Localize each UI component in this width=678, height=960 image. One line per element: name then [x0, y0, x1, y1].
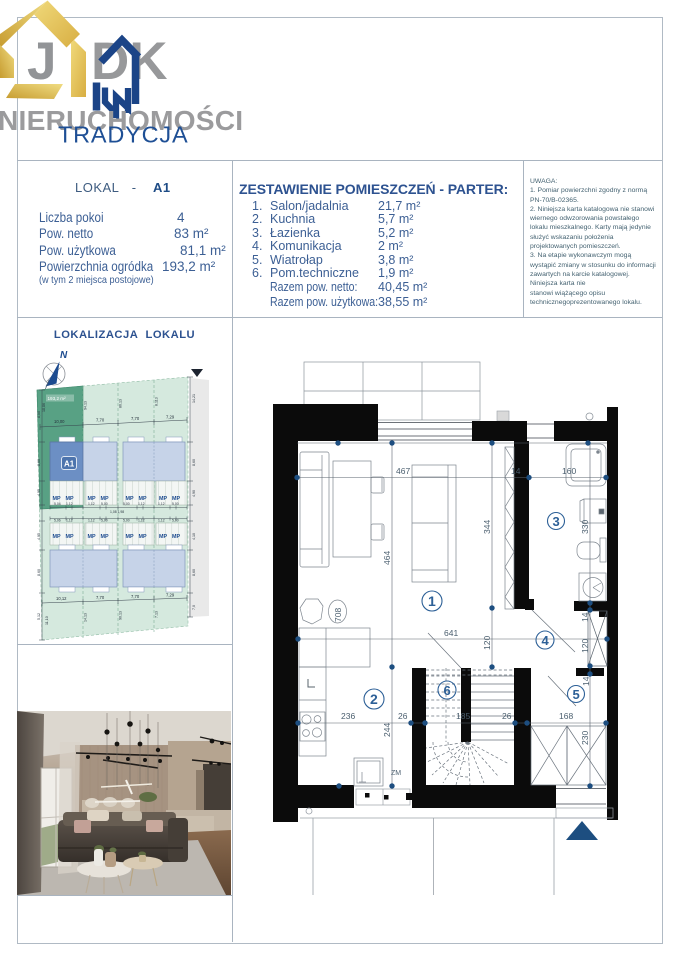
svg-text:11,10: 11,10: [45, 616, 49, 625]
svg-text:8,60: 8,60: [192, 459, 196, 466]
svg-text:7,13: 7,13: [155, 611, 159, 618]
svg-text:4,90: 4,90: [192, 490, 196, 497]
svg-text:MP: MP: [101, 534, 109, 540]
svg-text:MP: MP: [66, 534, 74, 540]
svg-text:5,06: 5,06: [54, 519, 61, 523]
svg-text:5,00: 5,00: [123, 502, 130, 506]
svg-text:26: 26: [502, 711, 512, 721]
svg-text:J: J: [27, 32, 56, 91]
svg-text:1,12: 1,12: [158, 502, 165, 506]
svg-text:236: 236: [341, 711, 355, 721]
svg-text:90,13: 90,13: [119, 611, 123, 620]
svg-text:5,00: 5,00: [123, 519, 130, 523]
svg-text:1,12: 1,12: [158, 519, 165, 523]
svg-text:18,86: 18,86: [42, 403, 46, 412]
svg-text:7,70: 7,70: [131, 594, 140, 599]
svg-text:MP: MP: [139, 534, 147, 540]
svg-text:10,12: 10,12: [56, 596, 67, 601]
svg-text:120: 120: [482, 636, 492, 650]
svg-text:94,13: 94,13: [84, 401, 88, 410]
svg-text:168: 168: [559, 711, 573, 721]
svg-text:26: 26: [398, 711, 408, 721]
svg-text:14,13: 14,13: [84, 613, 88, 622]
svg-text:86,13: 86,13: [119, 399, 123, 408]
svg-text:MP: MP: [172, 534, 180, 540]
svg-text:7,70: 7,70: [96, 418, 105, 423]
svg-text:A1: A1: [64, 460, 75, 469]
svg-text:5,00: 5,00: [101, 519, 108, 523]
svg-text:7,70: 7,70: [131, 416, 140, 421]
svg-text:N: N: [60, 350, 68, 361]
svg-text:120: 120: [580, 639, 590, 653]
svg-text:467: 467: [396, 466, 410, 476]
svg-text:TRADYCJA: TRADYCJA: [58, 122, 188, 148]
svg-text:1,12: 1,12: [88, 502, 95, 506]
svg-text:8,60: 8,60: [37, 569, 41, 576]
svg-text:185: 185: [456, 711, 470, 721]
svg-text:3: 3: [553, 514, 560, 529]
svg-text:MP: MP: [88, 534, 96, 540]
svg-text:344: 344: [482, 520, 492, 534]
svg-text:5: 5: [573, 687, 580, 702]
svg-text:464: 464: [382, 551, 392, 565]
svg-text:10,00: 10,00: [54, 419, 65, 424]
svg-text:1: 1: [428, 593, 436, 609]
svg-text:8,113: 8,113: [155, 397, 159, 406]
svg-text:14: 14: [511, 466, 521, 476]
svg-text:MP: MP: [53, 534, 61, 540]
svg-text:1,12: 1,12: [138, 519, 145, 523]
svg-text:330: 330: [580, 520, 590, 534]
svg-text:7,0: 7,0: [192, 605, 196, 610]
svg-text:MP: MP: [126, 534, 134, 540]
svg-text:1,12: 1,12: [66, 519, 73, 523]
svg-text:193,2 m²: 193,2 m²: [48, 396, 67, 401]
svg-text:4,10: 4,10: [192, 533, 196, 540]
svg-text:1,12: 1,12: [66, 502, 73, 506]
svg-text:5,00: 5,00: [101, 502, 108, 506]
svg-text:6: 6: [444, 683, 451, 698]
svg-text:14: 14: [580, 612, 590, 622]
svg-text:4,95: 4,95: [37, 533, 41, 540]
svg-text:8,60: 8,60: [192, 569, 196, 576]
svg-text:2: 2: [370, 691, 378, 707]
svg-text:8,60: 8,60: [37, 459, 41, 466]
svg-text:1,12: 1,12: [138, 502, 145, 506]
svg-text:708: 708: [333, 608, 343, 622]
svg-text:ZM: ZM: [391, 770, 401, 777]
svg-text:641: 641: [444, 628, 458, 638]
svg-text:4: 4: [542, 633, 550, 648]
svg-text:14,21: 14,21: [192, 394, 196, 403]
svg-text:244: 244: [382, 723, 392, 737]
svg-text:7,70: 7,70: [96, 595, 105, 600]
svg-text:160: 160: [562, 466, 576, 476]
svg-text:1,12: 1,12: [88, 519, 95, 523]
svg-text:7,29: 7,29: [166, 593, 175, 598]
svg-text:7,29: 7,29: [166, 415, 175, 420]
svg-text:8,00: 8,00: [37, 411, 41, 418]
svg-text:14: 14: [581, 676, 591, 686]
svg-text:4,95: 4,95: [37, 489, 41, 496]
svg-text:5,12: 5,12: [37, 613, 41, 620]
svg-text:5,00: 5,00: [172, 502, 179, 506]
svg-text:5,04: 5,04: [54, 502, 61, 506]
svg-text:230: 230: [580, 731, 590, 745]
svg-text:5,00: 5,00: [172, 519, 179, 523]
svg-text:1,08 1,98: 1,08 1,98: [110, 510, 124, 514]
svg-text:MP: MP: [159, 534, 167, 540]
